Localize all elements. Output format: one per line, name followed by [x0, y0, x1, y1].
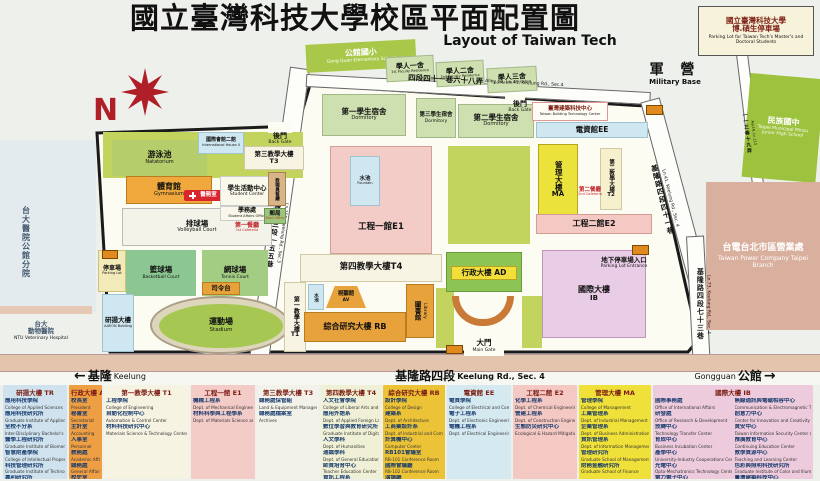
- legend-item-zh: 師資培育中心: [323, 463, 379, 470]
- rb-zh: 綜合研究大樓: [323, 322, 371, 331]
- legend-header: 工程二館 E2: [515, 387, 575, 397]
- legend-item-zh: 工程學院: [106, 398, 187, 405]
- gongguan-en: Gongguan: [694, 373, 735, 382]
- legend-column-T4: 第四教學大樓 T4人文社會學院College of Liberal Arts a…: [321, 385, 381, 479]
- basketball-court: 籃球場 Basketball Court: [126, 250, 196, 296]
- fountain-e1: 水池 Fountain: [350, 156, 380, 206]
- ntu-hospital-zh: 台大醫院公館分院: [21, 206, 30, 278]
- legend-item-zh: 管理研究所: [581, 450, 649, 457]
- legend-stack: 無線通訊與電磁相容中心Communication & Electromagnet…: [735, 398, 812, 479]
- fountain-t1-zh: 水池: [313, 293, 318, 302]
- building-t1: 第一教學大樓 T1: [284, 282, 306, 352]
- e2-zh: 工程二館: [572, 219, 604, 228]
- legend-items: 管理學院College of Management工業管理系Dept. of I…: [581, 398, 649, 475]
- main-gate-zh: 大門: [477, 339, 492, 347]
- legend-items: 國際事務處Office of International Affairs研發處O…: [655, 398, 811, 479]
- legend-column-E2: 工程二館 E2化學工程系Dept. of Chemical Engineerin…: [513, 385, 577, 479]
- legend-item-en: Computer Center: [385, 444, 443, 449]
- legend-item-en: Opto-Mechatronics Technology Center: [655, 469, 732, 474]
- gate-marker-west: [102, 250, 118, 259]
- post-office: 郵局 Post Office: [264, 208, 286, 224]
- legend-item-zh: 光電中心: [655, 463, 732, 470]
- legend-header: 行政大樓 AD: [71, 387, 100, 397]
- legend-item-zh: 生態防災研究中心: [515, 424, 575, 431]
- tennis-en: Tennis Court: [221, 275, 249, 280]
- cafeteria-2: 第二餐廳 2nd Cafeteria: [576, 184, 604, 200]
- parking-entrance: 地下停車場入口 Parking Lot Entrance: [584, 254, 664, 272]
- back-gate-top: 後門 Back Gate: [502, 99, 538, 115]
- t2-code: T2: [607, 192, 615, 198]
- legend-item-en: Inter-Disciplinary Bachelor's Program: [5, 431, 65, 436]
- legend-item-en: Dept. of Construction Engineering: [515, 418, 575, 423]
- dorm3-en: Dormitory: [425, 119, 448, 124]
- legend-item-zh: 數位學習與教育研究所: [323, 424, 379, 431]
- legend-item-en: Continuing Education Center: [735, 444, 812, 449]
- compass-star-icon: [121, 68, 169, 116]
- building-e1: 工程一館E1: [330, 146, 432, 254]
- stadium-zh: 運動場: [209, 318, 233, 327]
- legend-item-en: RB-101 Conference Room: [385, 457, 443, 462]
- ad-label-box: 行政大樓 AD: [451, 266, 517, 280]
- tennis-zh: 網球場: [224, 266, 247, 274]
- legend-item-en: Graduate Institute of Technology Managem…: [5, 469, 65, 474]
- legend-item-zh: 材料科學與工程學系: [193, 411, 253, 418]
- stadium-track: 運動場 Stadium: [150, 296, 290, 354]
- fountain-t1: 水池: [308, 284, 324, 310]
- taipower-block: 台電台北市區營業處 Taiwan Power Company Taipei Br…: [706, 182, 820, 330]
- health-center: 醫務室: [184, 190, 222, 201]
- legend-item-zh: 育成中心: [655, 437, 732, 444]
- taipower-zh: 台電台北市區營業處: [713, 243, 813, 253]
- legend-header: 第四教學大樓 T4: [323, 387, 379, 397]
- legend-item-en: Dept. of General Education: [323, 457, 379, 462]
- library: 圖書館 Library: [406, 284, 434, 338]
- page-title-zh: 國立臺灣科技大學校區平面配置圖: [130, 2, 580, 34]
- e1-code: E1: [392, 222, 404, 232]
- legend-item-en: Technology Transfer Center: [655, 431, 732, 436]
- legend-item-zh: RB101會議室: [385, 450, 443, 457]
- parking-lot-en: Parking Lot: [102, 272, 122, 276]
- legend-item-en: Land & Equipment Management: [259, 405, 317, 410]
- gate-marker-parking-entrance: [632, 245, 649, 255]
- aaeon-building: 研揚大樓 AAEON Building: [102, 294, 134, 352]
- ee-zh: 電資館: [576, 125, 599, 134]
- main-gate: 大門 Main Gate: [466, 336, 502, 356]
- legend-item-en: Dept. of Industrial and Commercial Desig…: [385, 431, 443, 436]
- grad-parking-line2: 博.碩生停車場: [732, 25, 780, 33]
- ln73-label: 基隆路四段七十三巷 Ln.73, Keelung Rd., Sec. 4: [690, 244, 716, 364]
- taipower-en: Taiwan Power Company Taipei Branch: [716, 256, 811, 269]
- legend-item-zh: 企業管理系: [581, 424, 649, 431]
- legend-item-zh: 全校不分系: [5, 424, 65, 431]
- ad-label: 行政大樓 AD: [462, 269, 507, 277]
- e1-label: 工程一館E1: [358, 223, 404, 233]
- keelung-en: Keelung: [114, 373, 146, 382]
- ntu-vet-zh2: 動物醫院: [28, 328, 54, 335]
- legend-stack: 電資學院College of Electrical and Computer E…: [449, 398, 509, 437]
- legend-item-zh: 設計學院: [385, 398, 443, 405]
- legend-item-en: Graduate Institute of Biomedical Enginee…: [5, 444, 65, 449]
- legend-item-zh: 電力電子中心: [655, 475, 732, 479]
- legend: 研揚大樓 TR應用科技學院College of Applied Sciences…: [3, 385, 813, 479]
- legend-item-en: Dept. of Applied Foreign Languages: [323, 418, 379, 423]
- basketball-zh: 籃球場: [150, 266, 173, 274]
- legend-item-zh: 國際事務處: [655, 398, 732, 405]
- legend-item-zh: 研發處: [655, 411, 732, 418]
- stadium-en: Stadium: [210, 327, 233, 333]
- legend-items: 工程學院College of Engineering自動化控制中心Automat…: [106, 398, 187, 437]
- legend-stack: 設計學院College of Design建築系Dept. of Archite…: [385, 398, 443, 479]
- e2-label: 工程二館E2: [572, 220, 615, 229]
- grad-parking-en: Parking Lot for Taiwan Tech's Master's a…: [704, 35, 808, 45]
- tbtc-building: 臺灣建築科技中心 Taiwan Building Technology Cent…: [532, 102, 608, 121]
- legend-item-en: Graduate School of Management: [581, 457, 649, 462]
- legend-item-en: Dept. of Industrial Management: [581, 418, 649, 423]
- legend-item-en: University-Industry Cooperations Center: [655, 457, 732, 462]
- direction-gongguan: Gongguan 公館 →: [660, 369, 810, 385]
- legend-item-en: Personnel: [71, 444, 100, 449]
- legend-item-zh: 校史室: [71, 475, 100, 479]
- t4-code: T4: [391, 262, 403, 272]
- gongguan-zh: 公館: [738, 370, 762, 383]
- minzu-en: Taipei Municipal Minzu Junior High Schoo…: [752, 125, 813, 140]
- legend-item-en: College of Design: [385, 405, 443, 410]
- legend-item-en: Office of International Affairs: [655, 405, 732, 410]
- legend-item-en: President: [71, 405, 100, 410]
- dorm1-en: Dormitory: [351, 116, 376, 122]
- health-zh: 醫務室: [200, 192, 217, 198]
- legend-items: 機械工程系Dept. of Mechanical Engineering材料科學…: [193, 398, 253, 424]
- keelung-rd-en: Keelung Rd., Sec. 4: [457, 373, 545, 382]
- back-gate-top-en: Back Gate: [508, 108, 531, 113]
- building-t2: 第二教學大樓 T2: [600, 148, 622, 210]
- intl-house-2-en: International House II: [202, 144, 240, 148]
- legend-item-zh: 教務處: [71, 450, 100, 457]
- legend-item-zh: 人事室: [71, 437, 100, 444]
- t1-zh: 第一教學大樓: [292, 296, 299, 332]
- legend-item-zh: 電機工程系: [449, 424, 509, 431]
- intl-house-2: 國際會館二館 International House II: [198, 132, 244, 154]
- keelung-rd-sec4-label: 基隆路四段 Keelung Rd., Sec. 4: [360, 369, 580, 385]
- legend-stack: 應用科技學院College of Applied Sciences應用科技研究所…: [5, 398, 65, 479]
- natatorium-en: Natatorium: [145, 160, 173, 166]
- military-base: 軍 營 Military Base: [638, 58, 712, 92]
- legend-item-en: Dept. of Materials Science and Engineeri…: [193, 418, 253, 423]
- legend-item-en: Ecological & Hazard Mitigation Engineeri…: [515, 431, 575, 436]
- grad-parking-box: 國立臺灣科技大學 博.碩生停車場 Parking Lot for Taiwan …: [698, 6, 814, 56]
- alley68-en: Alley 68, Ln.41, Keelung Rd., Sec.4: [485, 79, 564, 88]
- page-title: 國立臺灣科技大學校區平面配置圖: [140, 0, 570, 36]
- legend-stack: 工程學院College of Engineering自動化控制中心Automat…: [106, 398, 187, 437]
- legend-item-zh: 演講廳: [385, 475, 443, 479]
- legend-item-en: Dept. of Chemical Engineering: [515, 405, 575, 410]
- t1-code: T1: [291, 332, 299, 339]
- military-zh: 軍 營: [650, 63, 701, 79]
- legend-column-IB: 國際大樓 IB國際事務處Office of International Affa…: [653, 385, 813, 479]
- legend-item-zh: 應用外語系: [323, 411, 379, 418]
- direction-keelung: ← 基隆 Keelung: [30, 369, 190, 385]
- building-t3: 第三教學大樓 T3: [244, 146, 304, 170]
- dorm-1: 第一學生宿舍 Dormitory: [322, 94, 406, 136]
- legend-header: 第一教學大樓 T1: [106, 387, 187, 397]
- legend-item-zh: 教學資源中心: [735, 450, 812, 457]
- ad-code: AD: [494, 268, 506, 277]
- legend-item-zh: 通識學科: [323, 450, 379, 457]
- legend-item-en: Communication & Electromagnetic Technolo…: [735, 405, 812, 410]
- staff-cafeteria: 教職員餐廳: [268, 172, 286, 206]
- legend-item-en: Graduate Institute of Color and Illumina…: [735, 469, 812, 474]
- aly19-zh: 一一三巷十九弄: [741, 112, 752, 154]
- legend-item-en: Graduate Institute of Applied Science an…: [5, 418, 65, 423]
- legend-item-en: Dept. of Electrical Engineering: [449, 431, 509, 436]
- legend-item-en: Academic Affairs: [71, 457, 100, 462]
- compass-n-label: N: [93, 93, 118, 128]
- legend-item-zh: 財務金融研究所: [581, 463, 649, 470]
- ad-zh: 行政大樓: [462, 268, 492, 277]
- t3-code: T3: [270, 158, 279, 165]
- legend-item-zh: 醫學工程研究所: [5, 437, 65, 444]
- dorm2-en: Dormitory: [483, 122, 508, 128]
- page-subtitle: Layout of Taiwan Tech: [440, 34, 620, 50]
- student-affairs-en: Student Affairs Office: [228, 215, 265, 219]
- legend-item-zh: 工商業設計系: [385, 424, 443, 431]
- legend-item-zh: 國際會議廳: [385, 463, 443, 470]
- building-ee: 電資館EE: [536, 122, 648, 138]
- student-center-en: Student Center: [230, 192, 264, 197]
- legend-header: 研揚大樓 TR: [5, 387, 65, 397]
- legend-item-zh: 化學工程系: [515, 398, 575, 405]
- legend-item-zh: 產學中心: [655, 450, 732, 457]
- legend-header: 國際大樓 IB: [655, 387, 811, 397]
- legend-item-zh: 自動化控制中心: [106, 411, 187, 418]
- stadium-field: 運動場 Stadium: [159, 304, 283, 348]
- legend-item-zh: 技轉中心: [655, 424, 732, 431]
- legend-item-zh: 建築系: [385, 411, 443, 418]
- library-zh: 圖書館: [413, 301, 420, 321]
- legend-item-en: Secretariat: [71, 418, 100, 423]
- legend-stack: 總務處保管組Land & Equipment Management總務處檔案室A…: [259, 398, 317, 424]
- legend-column-MA: 管理大樓 MA管理學院College of Management工業管理系Dep…: [579, 385, 651, 479]
- legend-column-RB: 綜合研究大樓 RB設計學院College of Design建築系Dept. o…: [383, 385, 445, 479]
- medical-cross-icon: [189, 192, 196, 199]
- legend-items: 人文社會學院College of Liberal Arts and Social…: [323, 398, 379, 479]
- student-center: 學生活動中心 Student Center: [220, 176, 274, 206]
- legend-item-en: College of Liberal Arts and Social Scien…: [323, 405, 379, 410]
- e2-code: E2: [604, 219, 615, 228]
- legend-item-en: Teacher Education Center: [323, 469, 379, 474]
- legend-item-en: Dept. of Information Management: [581, 444, 649, 449]
- legend-stack: 國際事務處Office of International Affairs研發處O…: [655, 398, 732, 479]
- legend-item-en: Dept. of Business Administration: [581, 431, 649, 436]
- right-arrow-icon: →: [764, 369, 776, 385]
- gate-marker-northeast: [646, 105, 663, 115]
- page-subtitle-en: Layout of Taiwan Tech: [443, 34, 616, 50]
- legend-item-zh: 校長室: [71, 398, 100, 405]
- ib-code: IB: [590, 295, 598, 303]
- legend-column-T1: 第一教學大樓 T1工程學院College of Engineering自動化控制…: [104, 385, 189, 479]
- legend-item-en: Dept. of Humanities: [323, 444, 379, 449]
- legend-items: 化學工程系Dept. of Chemical Engineering營建工程系D…: [515, 398, 575, 437]
- legend-item-zh: 臺灣建築科技中心: [735, 475, 812, 479]
- alley68-zh: 四段四十一巷六十八弄: [408, 74, 483, 86]
- left-arrow-icon: ←: [74, 369, 86, 385]
- legend-header: 電資館 EE: [449, 387, 509, 397]
- legend-item-en: College of Applied Sciences: [5, 405, 65, 410]
- cafeteria-2-en: 2nd Cafeteria: [578, 193, 602, 197]
- legend-item-en: Business Incubation Center: [655, 444, 732, 449]
- fountain-e1-en: Fountain: [357, 182, 372, 186]
- t2-zh: 第二教學大樓: [608, 159, 614, 192]
- gate-marker-main: [446, 345, 463, 354]
- ma-code: MA: [552, 191, 564, 199]
- compass: N: [85, 64, 195, 128]
- ma-zh: 管理大樓: [554, 161, 562, 191]
- legend-item-zh: 計算機中心: [385, 437, 443, 444]
- podium-zh: 司令台: [211, 285, 231, 292]
- post-office-en: Post Office: [266, 217, 285, 221]
- e1-zh: 工程一館: [358, 222, 392, 232]
- legend-column-TR: 研揚大樓 TR應用科技學院College of Applied Sciences…: [3, 385, 67, 479]
- library-en: Library: [422, 303, 427, 319]
- military-en: Military Base: [649, 79, 701, 87]
- legend-item-en: Teaching and Learning Center: [735, 457, 812, 462]
- legend-items: 電資學院College of Electrical and Computer E…: [449, 398, 509, 437]
- campus-map: 國立臺灣科技大學校區平面配置圖 Layout of Taiwan Tech N …: [0, 0, 820, 481]
- ntu-vet-en: NTU Veterinary Hospital: [14, 336, 68, 341]
- keelung-zh: 基隆: [88, 370, 112, 383]
- legend-item-en: College of Management: [581, 405, 649, 410]
- ln73-zh: 基隆路四段七十三巷: [696, 268, 704, 340]
- t4-zh: 第四教學大樓: [340, 262, 391, 272]
- legend-item-zh: 主計室: [71, 424, 100, 431]
- cafeteria-1-en: 1st Cafeteria: [236, 229, 259, 233]
- legend-stack: 校長室President秘書室Secretariat主計室Accounting人…: [71, 398, 100, 479]
- podium: 司令台: [202, 282, 240, 295]
- legend-column-AD: 行政大樓 AD校長室President秘書室Secretariat主計室Acco…: [69, 385, 102, 479]
- legend-item-en: Center for Innovation and Creativity: [735, 418, 812, 423]
- legend-item-zh: 創意力中心: [735, 411, 812, 418]
- legend-item-zh: 應用科技學院: [5, 398, 65, 405]
- legend-column-T3: 第三教學大樓 T3總務處保管組Land & Equipment Manageme…: [257, 385, 319, 479]
- av-code: AV: [343, 298, 350, 303]
- ntu-vet: 台大 動物醫院 NTU Veterinary Hospital: [4, 316, 78, 346]
- parking-entrance-en: Parking Lot Entrance: [601, 264, 648, 269]
- legend-item-en: College of Intellectual Property Studies: [5, 457, 65, 462]
- legend-item-zh: 工業管理系: [581, 411, 649, 418]
- legend-item-en: College of Electrical and Computer Engin…: [449, 405, 509, 410]
- legend-items: 總務處保管組Land & Equipment Management總務處檔案室A…: [259, 398, 317, 424]
- back-gate-left-en: Back Gate: [268, 140, 291, 145]
- legend-item-zh: 機械工程系: [193, 398, 253, 405]
- lawn-east-arc: [522, 296, 542, 348]
- legend-item-zh: 人文學科: [323, 437, 379, 444]
- legend-item-zh: 電子工程系: [449, 411, 509, 418]
- building-ma: 管理大樓 MA: [538, 144, 578, 216]
- legend-header: 第三教學大樓 T3: [259, 387, 317, 397]
- building-t4: 第四教學大樓T4: [300, 254, 442, 282]
- legend-item-zh: 智慧財產學院: [5, 450, 65, 457]
- legend-item-en: Graduate Institute of Digital Learning a…: [323, 431, 379, 436]
- legend-stack: 化學工程系Dept. of Chemical Engineering營建工程系D…: [515, 398, 575, 437]
- legend-item-en: Taiwan Information Security Center at NT…: [735, 431, 812, 436]
- lawn-central: [448, 146, 530, 244]
- legend-item-en: Office of Research & Development: [655, 418, 732, 423]
- volleyball-en: Volleyball Court: [177, 228, 216, 234]
- basketball-en: Basketball Court: [142, 275, 179, 280]
- keelung-rd-zh: 基隆路四段: [395, 370, 455, 383]
- legend-header: 綜合研究大樓 RB: [385, 387, 443, 397]
- legend-item-en: College of Engineering: [106, 405, 187, 410]
- legend-item-en: Materials Science & Technology Center: [106, 431, 187, 436]
- ln73-en: Ln.73, Keelung Rd., Sec. 4: [705, 275, 710, 334]
- tbtc-en: Taiwan Building Technology Center: [540, 113, 601, 117]
- legend-item-zh: 總務處檔案室: [259, 411, 317, 418]
- legend-item-zh: 應用科技研究所: [5, 411, 65, 418]
- legend-items: 設計學院College of Design建築系Dept. of Archite…: [385, 398, 443, 479]
- aaeon-en: AAEON Building: [104, 325, 132, 329]
- legend-item-zh: 電資學院: [449, 398, 509, 405]
- ee-code: EE: [598, 125, 608, 134]
- legend-item-zh: 管理學院: [581, 398, 649, 405]
- legend-stack: 人文社會學院College of Liberal Arts and Social…: [323, 398, 379, 479]
- dorm-3: 第三學生宿舍 Dormitory: [416, 98, 456, 138]
- main-gate-en: Main Gate: [473, 348, 496, 353]
- legend-item-zh: 無線通訊與電磁相容中心: [735, 398, 812, 405]
- legend-item-zh: 資安中心: [735, 424, 812, 431]
- legend-item-en: Archives: [259, 418, 317, 423]
- legend-items: 校長室President秘書室Secretariat主計室Accounting人…: [71, 398, 100, 479]
- legend-item-en: Dept. of Mechanical Engineering: [193, 405, 253, 410]
- legend-item-zh: 總務處: [71, 463, 100, 470]
- back-gate-left: 後門 Back Gate: [260, 130, 300, 148]
- legend-item-zh: 總務處保管組: [259, 398, 317, 405]
- legend-stack: 機械工程系Dept. of Mechanical Engineering材料科學…: [193, 398, 253, 424]
- legend-item-en: RB-102 Conference Room: [385, 469, 443, 474]
- legend-item-en: Accounting: [71, 431, 100, 436]
- building-ad: 行政大樓 AD: [446, 252, 522, 292]
- legend-item-zh: 色彩與照明科技研究所: [735, 463, 812, 470]
- legend-items: 應用科技學院College of Applied Sciences應用科技研究所…: [5, 398, 65, 479]
- legend-column-E1: 工程一館 E1機械工程系Dept. of Mechanical Engineer…: [191, 385, 255, 479]
- staff-cafeteria-zh: 教職員餐廳: [274, 178, 279, 201]
- legend-item-en: Graduate School of Finance: [581, 469, 649, 474]
- legend-item-en: Automation & Control Center: [106, 418, 187, 423]
- legend-item-zh: 科技管理研究所: [5, 463, 65, 470]
- legend-stack: 管理學院College of Management工業管理系Dept. of I…: [581, 398, 649, 475]
- legend-item-zh: 推廣教育中心: [735, 437, 812, 444]
- legend-item-zh: 資訊管理系: [581, 437, 649, 444]
- rb-code: RB: [374, 322, 386, 331]
- ee-label: 電資館EE: [576, 126, 609, 134]
- legend-item-zh: 營建工程系: [515, 411, 575, 418]
- gymnasium-en: Gymnasium: [154, 192, 184, 198]
- legend-item-zh: 秘書室: [71, 411, 100, 418]
- building-rb: 綜合研究大樓 RB: [304, 312, 406, 342]
- natatorium: 游泳池 Natatorium: [112, 140, 207, 176]
- legend-item-zh: 人文社會學院: [323, 398, 379, 405]
- legend-header: 工程一館 E1: [193, 387, 253, 397]
- legend-item-en: Dept. of Architecture: [385, 418, 443, 423]
- legend-item-en: General Affairs: [71, 469, 100, 474]
- t4-label: 第四教學大樓T4: [340, 263, 403, 273]
- legend-item-zh: 材料科技研究中心: [106, 424, 187, 431]
- ntu-hospital: 台大醫院公館分院: [14, 182, 36, 302]
- legend-column-EE: 電資館 EE電資學院College of Electrical and Comp…: [447, 385, 511, 479]
- legend-item-zh: 資訊工程系: [323, 475, 379, 479]
- building-e2: 工程二館E2: [536, 214, 652, 234]
- rb-label: 綜合研究大樓 RB: [323, 323, 386, 332]
- legend-header: 管理大樓 MA: [581, 387, 649, 397]
